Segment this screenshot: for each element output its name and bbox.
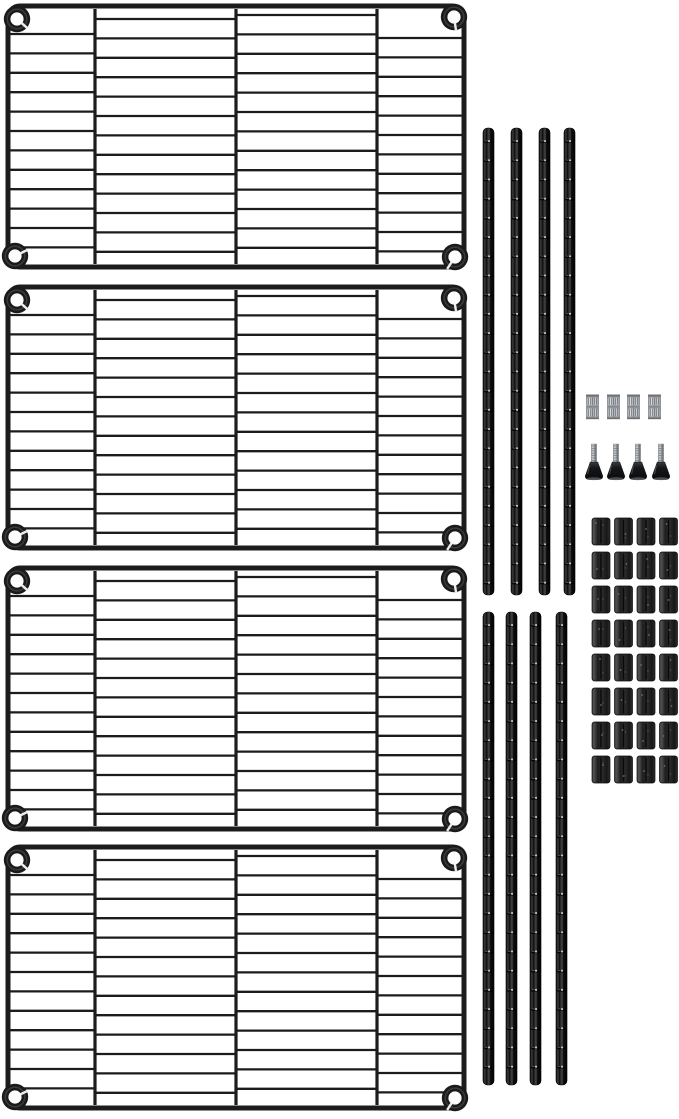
pole-groove-highlight (544, 332, 546, 334)
nut-flange (627, 406, 640, 408)
pole-groove-highlight (544, 351, 546, 353)
collar-hole (8, 811, 21, 824)
pole-groove-highlight (561, 739, 563, 741)
pole-groove-highlight (516, 313, 518, 315)
sleeve-clip (660, 688, 678, 715)
pole-groove-highlight (488, 178, 490, 180)
sleeve-clip (592, 654, 610, 681)
pole-groove-highlight (516, 524, 518, 526)
sleeve-glint (625, 597, 626, 598)
foot-base-rim (654, 477, 668, 480)
pole-groove-highlight (561, 854, 563, 856)
pole-groove-highlight (535, 816, 537, 818)
pole-groove-highlight (544, 428, 546, 430)
pole-groove-highlight (569, 390, 571, 392)
pole-groove-highlight (569, 562, 571, 564)
sleeve-clip (637, 552, 655, 579)
pole-groove-highlight (516, 236, 518, 238)
sleeve-clip (637, 654, 655, 681)
pole-groove-highlight (488, 1027, 490, 1029)
pole-groove-highlight (516, 390, 518, 392)
leveling-foot (629, 444, 647, 480)
pole-groove-highlight (544, 543, 546, 545)
sleeve-glint (626, 563, 628, 565)
sleeve-glint (625, 671, 626, 672)
pole-groove-highlight (544, 370, 546, 372)
sleeve-clip (637, 620, 655, 647)
pole-groove-highlight (488, 682, 490, 684)
pole-groove-highlight (488, 274, 490, 276)
sleeve-glint (663, 735, 665, 737)
pole-groove-highlight (488, 447, 490, 449)
nut-flange (607, 406, 620, 408)
pole-groove-highlight (516, 332, 518, 334)
pole-groove-highlight (511, 1027, 513, 1029)
pole-groove-highlight (488, 758, 490, 760)
pole-groove-highlight (569, 505, 571, 507)
nut-washer (627, 417, 640, 419)
pole-groove-highlight (488, 797, 490, 799)
pole-groove-highlight (511, 989, 513, 991)
pole-groove-highlight (569, 486, 571, 488)
pole-groove-highlight (569, 313, 571, 315)
pole-groove-highlight (488, 1046, 490, 1048)
wire-shelf (2, 845, 468, 1111)
pole-groove-highlight (569, 159, 571, 161)
pole-groove-highlight (511, 950, 513, 952)
pole-groove-highlight (544, 140, 546, 142)
pole-groove-highlight (535, 854, 537, 856)
sleeve-clips (592, 518, 678, 783)
pole-groove-highlight (561, 874, 563, 876)
pole-groove-highlight (569, 351, 571, 353)
pole-groove-highlight (516, 582, 518, 584)
pole-groove-highlight (516, 159, 518, 161)
pole-groove-highlight (561, 682, 563, 684)
sleeve-glint (670, 565, 671, 566)
pole-groove-highlight (544, 198, 546, 200)
sleeve-clip (637, 518, 655, 545)
knurled-nut-set (627, 395, 640, 420)
pole-groove-highlight (488, 370, 490, 372)
nut-washer (648, 417, 661, 419)
pole-groove-highlight (544, 409, 546, 411)
sleeve-glint (595, 522, 597, 524)
pole-groove-highlight (544, 313, 546, 315)
pole-groove-highlight (561, 778, 563, 780)
pole-groove-highlight (511, 1008, 513, 1010)
pole-groove-highlight (516, 466, 518, 468)
wire-shelf (2, 4, 468, 270)
corner-collar (442, 244, 468, 270)
sleeve-glint (647, 596, 648, 597)
pole-groove-highlight (488, 255, 490, 257)
pole-groove-highlight (488, 486, 490, 488)
sleeve-glint (645, 528, 647, 530)
pole-groove-highlight (488, 854, 490, 856)
pole-groove-highlight (544, 294, 546, 296)
sleeve-clip (592, 620, 610, 647)
pole-groove-highlight (544, 562, 546, 564)
sleeve-glint (597, 598, 599, 600)
corner-collar (4, 847, 30, 873)
pole-groove-highlight (516, 447, 518, 449)
collar-hole (448, 250, 461, 263)
pole-groove-highlight (488, 701, 490, 703)
pole-group-bottom (483, 612, 567, 1085)
sleeve-glint (602, 672, 603, 673)
pole-groove-highlight (511, 778, 513, 780)
sleeve-glint (602, 524, 603, 525)
leveling-foot (607, 444, 625, 480)
collar-hole (448, 531, 461, 544)
sleeve-clip (660, 552, 678, 579)
pole-groove-highlight (569, 428, 571, 430)
pole-groove-highlight (488, 198, 490, 200)
sleeve-glint (666, 523, 668, 525)
pole-groove-highlight (516, 140, 518, 142)
shelving-kit-scene (0, 0, 679, 1119)
sleeve-glint (601, 734, 603, 736)
shelf-pole (483, 612, 494, 1085)
sleeve-glint (619, 639, 621, 641)
pole-groove-highlight (561, 1008, 563, 1010)
pole-groove-highlight (544, 582, 546, 584)
pole-groove-highlight (569, 409, 571, 411)
pole-groove-highlight (488, 562, 490, 564)
pole-groove-highlight (535, 778, 537, 780)
sleeve-glint (602, 702, 603, 703)
collar-slit (455, 23, 456, 31)
foot-base-rim (587, 477, 601, 480)
sleeve-glint (599, 658, 601, 660)
pole-groove-highlight (561, 931, 563, 933)
foot-base-rim (609, 477, 623, 480)
corner-collar (4, 568, 30, 594)
collar-hole (448, 812, 461, 825)
pole-groove-highlight (488, 893, 490, 895)
pole-groove-highlight (516, 428, 518, 430)
sleeve-glint (641, 694, 643, 696)
sleeve-glint (647, 774, 648, 775)
pole-groove-highlight (511, 931, 513, 933)
sleeve-clip (615, 654, 633, 681)
pole-groove-highlight (561, 624, 563, 626)
sleeve-clip (637, 586, 655, 613)
sleeve-glint (625, 567, 626, 568)
sleeve-glint (602, 764, 604, 766)
sleeve-glint (669, 629, 671, 631)
nut-washer (648, 395, 661, 397)
pole-groove-highlight (511, 970, 513, 972)
sleeve-glint (622, 729, 624, 731)
sleeve-glint (625, 731, 626, 732)
shelf-pole (539, 128, 550, 595)
pole-groove-highlight (516, 505, 518, 507)
sleeve-clip (637, 722, 655, 749)
pole-groove-highlight (511, 758, 513, 760)
sleeve-clip (592, 688, 610, 715)
sleeve-glint (667, 569, 669, 571)
pole-groove-highlight (561, 797, 563, 799)
pole-groove-highlight (488, 313, 490, 315)
corner-collar (442, 1085, 468, 1111)
foot-base-rim (631, 477, 645, 480)
sleeve-clip (592, 518, 610, 545)
knurled-nut-set (586, 395, 599, 420)
pole-groove-highlight (561, 893, 563, 895)
collar-slit (455, 864, 456, 872)
sleeve-clip (637, 756, 655, 783)
pole-groove-highlight (535, 720, 537, 722)
pole-group-top (483, 128, 575, 595)
pole-groove-highlight (535, 970, 537, 972)
pole-groove-highlight (516, 274, 518, 276)
pole-groove-highlight (516, 178, 518, 180)
pole-groove-highlight (511, 893, 513, 895)
sleeve-clip (615, 518, 633, 545)
sleeve-glint (602, 762, 603, 763)
sleeve-glint (671, 705, 673, 707)
sleeve-glint (664, 765, 666, 767)
pole-groove-highlight (569, 198, 571, 200)
pole-groove-highlight (561, 701, 563, 703)
shelf-pole (511, 128, 522, 595)
pole-groove-highlight (488, 332, 490, 334)
sleeve-glint (621, 699, 623, 701)
pole-groove-highlight (569, 466, 571, 468)
shelf-pole (556, 612, 567, 1085)
nut-washer (586, 395, 599, 397)
pole-groove-highlight (535, 1027, 537, 1029)
collar-hole (447, 291, 460, 304)
pole-groove-highlight (544, 255, 546, 257)
sleeve-clip (660, 518, 678, 545)
pole-groove-highlight (488, 524, 490, 526)
sleeve-glint (625, 775, 626, 776)
pole-groove-highlight (535, 835, 537, 837)
sleeve-glint (596, 568, 598, 570)
sleeve-clip (615, 722, 633, 749)
sleeve-clip (660, 756, 678, 783)
sleeve-clip (615, 586, 633, 613)
pole-groove-highlight (516, 294, 518, 296)
nut-washer (627, 395, 640, 397)
pole-groove-highlight (516, 562, 518, 564)
pole-groove-highlight (488, 390, 490, 392)
sleeve-glint (602, 598, 603, 599)
collar-hole (448, 1091, 461, 1104)
nut-washer (607, 395, 620, 397)
sleeve-glint (598, 628, 600, 630)
sleeve-glint (647, 670, 648, 671)
pole-groove-highlight (544, 217, 546, 219)
pole-groove-highlight (569, 217, 571, 219)
pole-groove-highlight (516, 370, 518, 372)
pole-groove-highlight (535, 893, 537, 895)
pole-groove-highlight (511, 1066, 513, 1068)
pole-groove-highlight (535, 950, 537, 952)
sleeve-glint (625, 627, 626, 628)
pole-groove-highlight (488, 505, 490, 507)
sleeve-glint (670, 773, 671, 774)
sleeve-clip (592, 756, 610, 783)
pole-groove-highlight (511, 682, 513, 684)
pole-groove-highlight (516, 409, 518, 411)
pole-groove-highlight (569, 543, 571, 545)
corner-collar (2, 805, 28, 831)
sleeve-glint (647, 604, 649, 606)
sleeve-glint (670, 595, 671, 596)
shelf-pole (530, 612, 541, 1085)
pole-groove-highlight (511, 797, 513, 799)
corner-collar (2, 1084, 28, 1110)
pole-groove-highlight (511, 739, 513, 741)
pole-groove-highlight (569, 582, 571, 584)
pole-groove-highlight (569, 140, 571, 142)
wire-shelf (2, 285, 468, 551)
sleeve-clip (660, 722, 678, 749)
sleeve-glint (643, 770, 645, 772)
pole-groove-highlight (561, 989, 563, 991)
knurled-nut-set (648, 395, 661, 420)
pole-groove-highlight (569, 524, 571, 526)
sleeve-glint (668, 599, 670, 601)
corner-collar (2, 243, 28, 269)
pole-groove-highlight (488, 720, 490, 722)
product-image (0, 0, 679, 1119)
pole-groove-highlight (569, 236, 571, 238)
collar-hole (447, 851, 460, 864)
pole-groove-highlight (488, 970, 490, 972)
knurled-nut-sets (586, 395, 661, 420)
pole-groove-highlight (488, 778, 490, 780)
pole-groove-highlight (488, 835, 490, 837)
pole-groove-highlight (488, 643, 490, 645)
pole-groove-highlight (544, 236, 546, 238)
sleeve-glint (602, 568, 603, 569)
sleeve-clip (660, 654, 678, 681)
sleeve-glint (648, 634, 650, 636)
pole-groove-highlight (535, 912, 537, 914)
collar-slit (455, 304, 456, 312)
pole-groove-highlight (544, 486, 546, 488)
pole-groove-highlight (516, 198, 518, 200)
leveling-feet (585, 444, 670, 480)
pole-groove-highlight (488, 950, 490, 952)
sleeve-glint (623, 775, 625, 777)
collar-slit (455, 585, 456, 593)
pole-groove-highlight (561, 1046, 563, 1048)
pole-groove-highlight (569, 178, 571, 180)
knurled-nut-set (607, 395, 620, 420)
sleeve-glint (602, 732, 603, 733)
sleeve-clip (592, 586, 610, 613)
pole-groove-highlight (535, 643, 537, 645)
pole-groove-highlight (488, 428, 490, 430)
pole-groove-highlight (544, 159, 546, 161)
collar-hole (447, 10, 460, 23)
pole-groove-highlight (488, 874, 490, 876)
sleeve-glint (640, 664, 642, 666)
pole-groove-highlight (561, 970, 563, 972)
pole-groove-highlight (511, 643, 513, 645)
pole-groove-highlight (561, 912, 563, 914)
pole-groove-highlight (569, 447, 571, 449)
pole-groove-highlight (511, 874, 513, 876)
corner-collar (2, 524, 28, 550)
pole-groove-highlight (535, 624, 537, 626)
pole-groove-highlight (488, 351, 490, 353)
corner-collar (442, 806, 468, 832)
pole-groove-highlight (516, 217, 518, 219)
pole-groove-highlight (535, 797, 537, 799)
pole-groove-highlight (535, 931, 537, 933)
pole-groove-highlight (488, 159, 490, 161)
sleeve-glint (625, 537, 626, 538)
pole-groove-highlight (511, 1046, 513, 1048)
pole-groove-highlight (535, 1046, 537, 1048)
pole-groove-highlight (488, 217, 490, 219)
pole-groove-highlight (488, 912, 490, 914)
pole-groove-highlight (488, 989, 490, 991)
pole-groove-highlight (535, 662, 537, 664)
sleeve-clip (615, 688, 633, 715)
sleeve-glint (618, 593, 620, 595)
pole-groove-highlight (561, 1066, 563, 1068)
pole-groove-highlight (488, 739, 490, 741)
pole-groove-highlight (544, 524, 546, 526)
pole-groove-highlight (544, 178, 546, 180)
pole-groove-highlight (569, 294, 571, 296)
collar-hole (447, 572, 460, 585)
pole-groove-highlight (535, 1008, 537, 1010)
pole-groove-highlight (488, 409, 490, 411)
pole-groove-highlight (535, 1066, 537, 1068)
sleeve-glint (647, 566, 648, 567)
pole-groove-highlight (488, 140, 490, 142)
pole-groove-highlight (488, 624, 490, 626)
pole-groove-highlight (544, 274, 546, 276)
sleeve-glint (670, 535, 671, 536)
pole-groove-highlight (516, 351, 518, 353)
nut-flange (586, 406, 599, 408)
pole-groove-highlight (561, 662, 563, 664)
sleeve-clip (615, 756, 633, 783)
sleeve-glint (647, 536, 648, 537)
pole-groove-highlight (516, 543, 518, 545)
wire-shelf (2, 566, 468, 832)
pole-groove-highlight (561, 1027, 563, 1029)
pole-groove-highlight (488, 1008, 490, 1010)
pole-groove-highlight (561, 720, 563, 722)
corner-collar (4, 287, 30, 313)
pole-groove-highlight (516, 486, 518, 488)
collar-hole (8, 1090, 21, 1103)
sleeve-clip (592, 552, 610, 579)
sleeve-glint (600, 704, 602, 706)
sleeve-glint (625, 533, 627, 535)
sleeve-clip (592, 722, 610, 749)
sleeve-clip (615, 620, 633, 647)
pole-groove-highlight (544, 447, 546, 449)
sleeve-clip (637, 688, 655, 715)
sleeve-glint (647, 700, 648, 701)
corner-collar (4, 6, 30, 32)
sleeve-clip (660, 620, 678, 647)
pole-groove-highlight (488, 543, 490, 545)
leveling-foot (652, 444, 670, 480)
